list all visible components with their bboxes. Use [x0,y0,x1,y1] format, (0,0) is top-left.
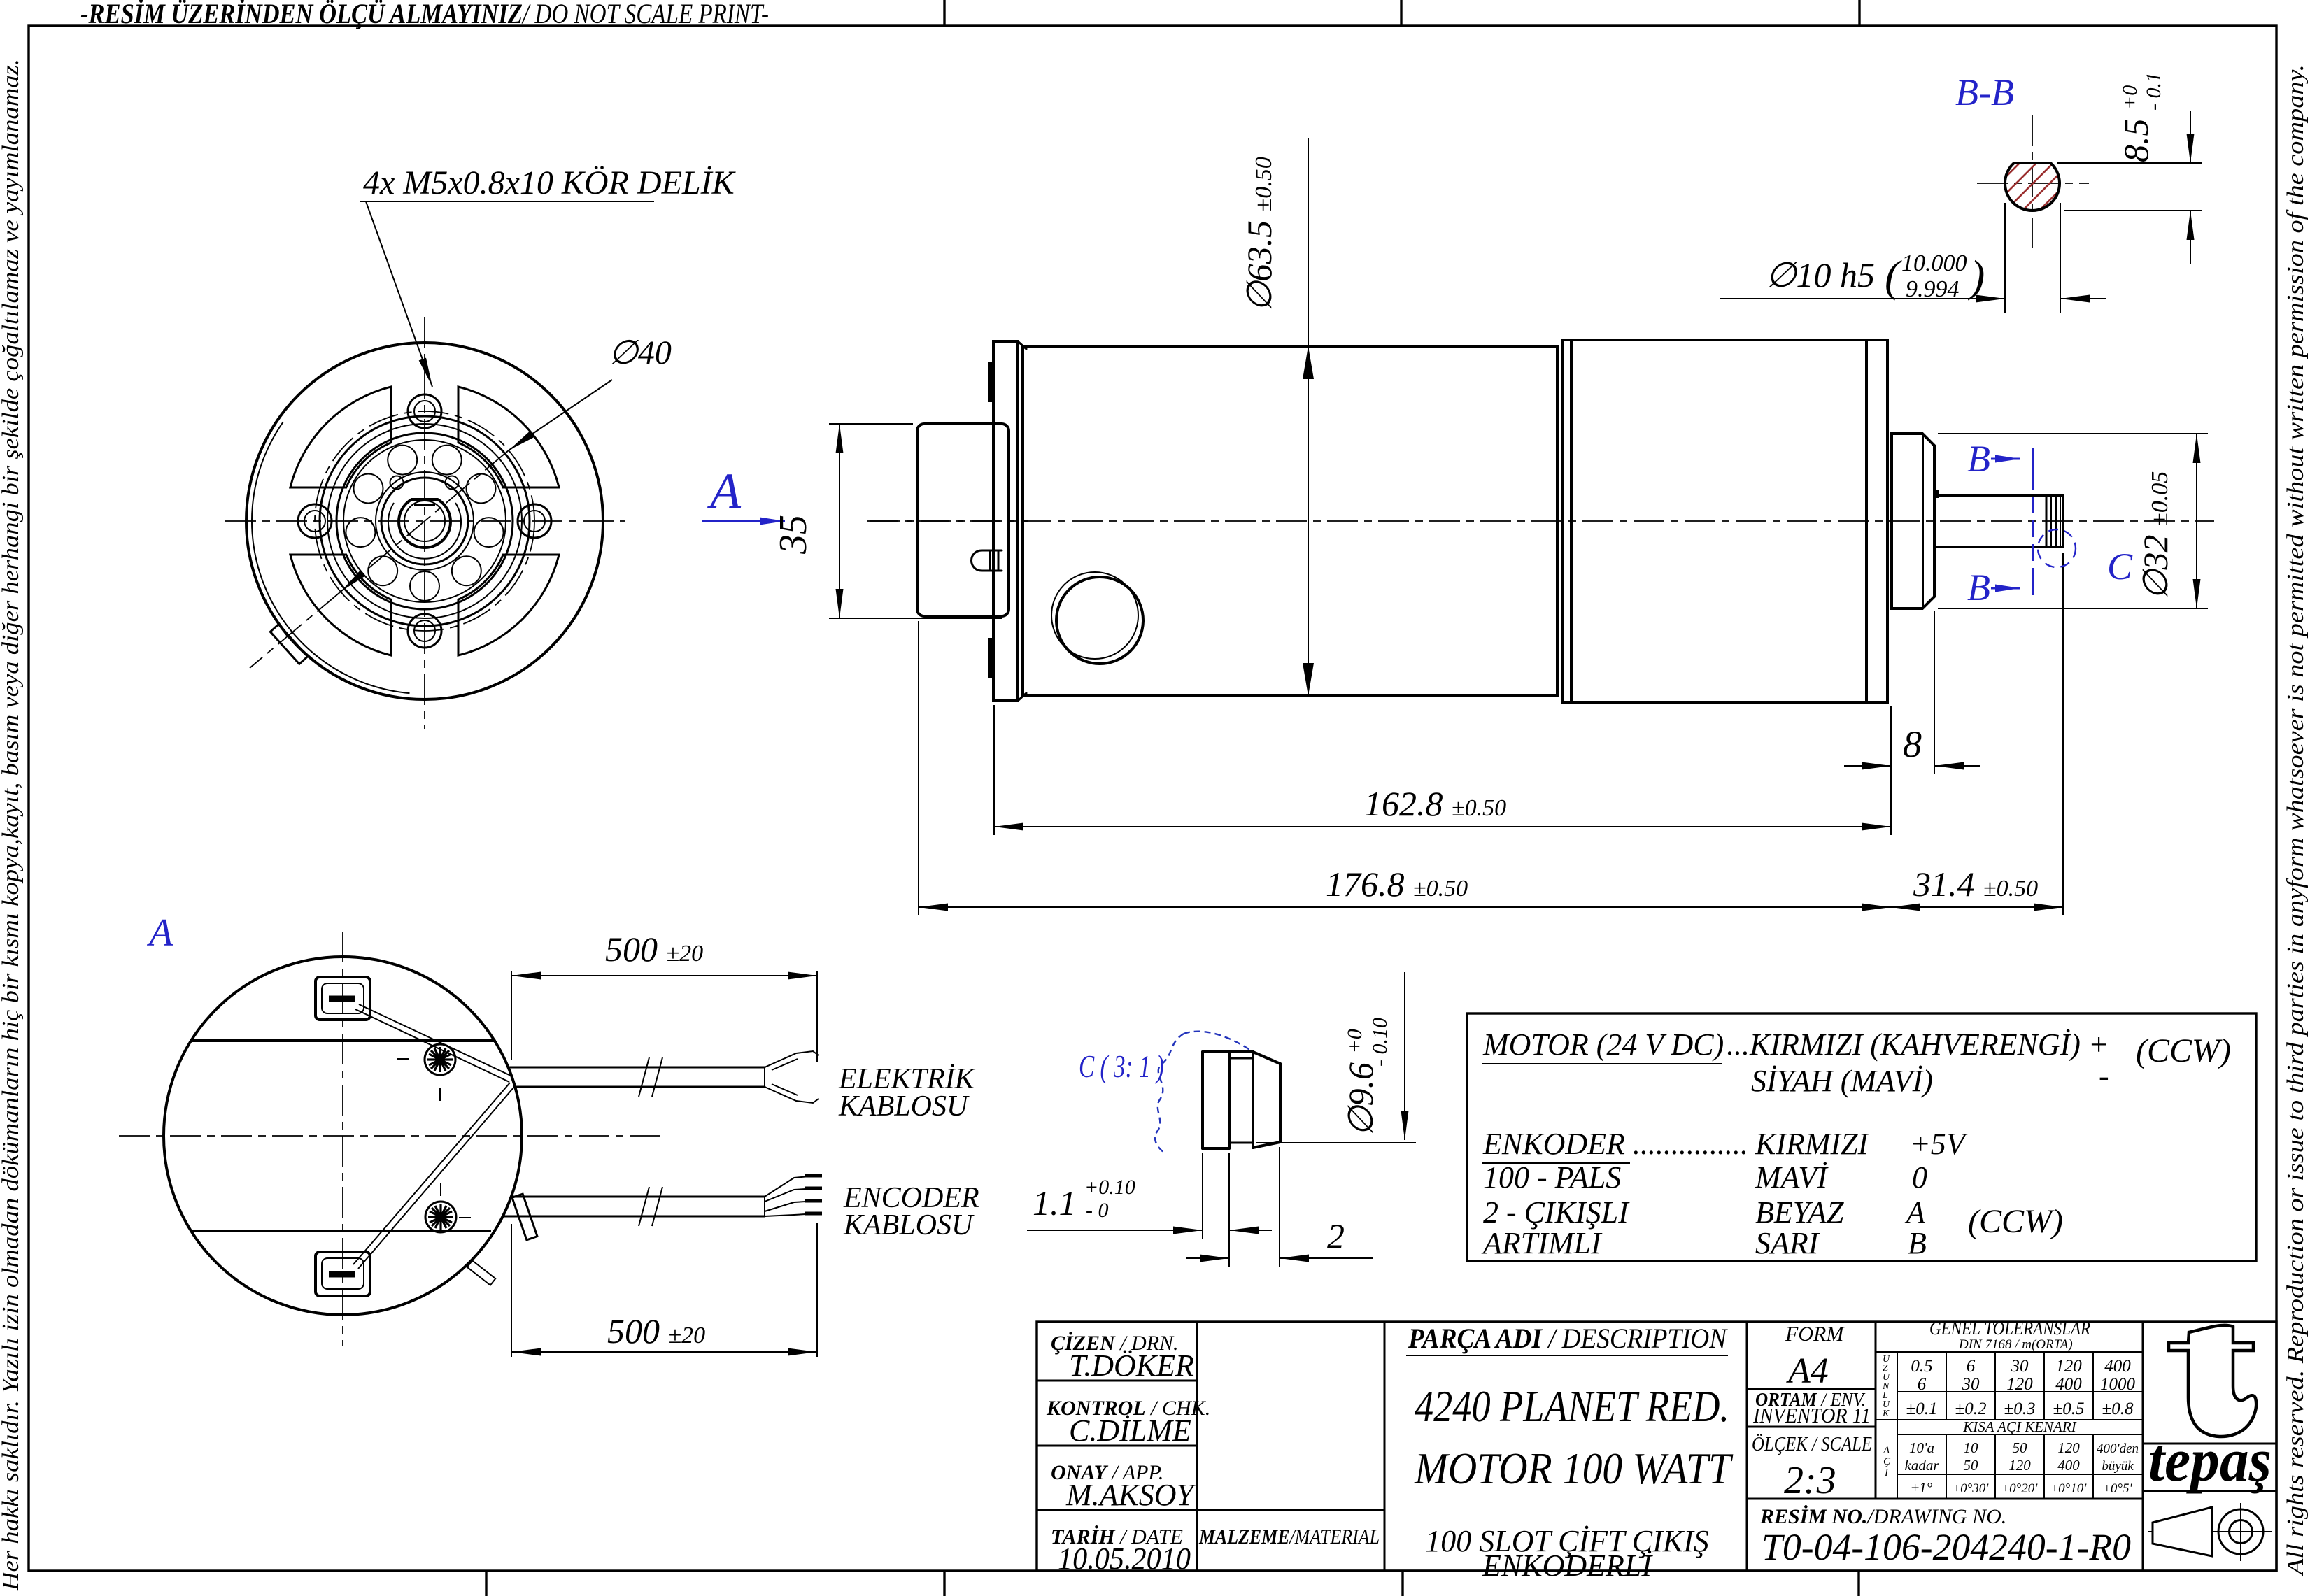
svg-text:0: 0 [1912,1160,1927,1195]
svg-text:1.1: 1.1 [1033,1183,1077,1223]
svg-text:∅10 h5: ∅10 h5 [1766,255,1875,294]
svg-text:- 0.1: - 0.1 [2142,72,2165,111]
svg-text:FORM: FORM [1785,1323,1845,1346]
svg-text:I: I [1884,1467,1889,1479]
svg-text:PARÇA ADI / DESCRIPTION: PARÇA ADI / DESCRIPTION [1408,1323,1728,1354]
svg-text:SARI: SARI [1755,1226,1820,1260]
svg-text:400: 400 [2055,1375,2082,1394]
svg-text:T0-04-106-204240-1-R0: T0-04-106-204240-1-R0 [1762,1526,2131,1568]
svg-text:MALZEME/MATERIAL: MALZEME/MATERIAL [1198,1525,1380,1548]
svg-text:+5V: +5V [1910,1127,1969,1161]
svg-text:1000: 1000 [2100,1375,2136,1394]
svg-text:INVENTOR 11: INVENTOR 11 [1752,1403,1871,1427]
svg-text:+0.10: +0.10 [1084,1176,1135,1199]
svg-text:±0°5': ±0°5' [2103,1481,2132,1496]
svg-text:kadar: kadar [1905,1457,1940,1474]
svg-text:MAVİ: MAVİ [1755,1160,1829,1195]
svg-text:(CCW): (CCW) [1968,1203,2063,1240]
svg-text:120: 120 [2006,1375,2033,1394]
svg-text:A4: A4 [1786,1351,1829,1391]
svg-text:10.05.2010: 10.05.2010 [1058,1541,1191,1576]
svg-text:M.AKSOY: M.AKSOY [1065,1478,1197,1512]
svg-text:-RESİM ÜZERİNDEN ÖLÇÜ ALMAYINI: -RESİM ÜZERİNDEN ÖLÇÜ ALMAYINIZ [80,0,523,29]
svg-text:400: 400 [2104,1357,2131,1376]
svg-text:KISA AÇI KENARI: KISA AÇI KENARI [1962,1418,2076,1435]
svg-text:0.5: 0.5 [1911,1357,1932,1376]
svg-text:6: 6 [1918,1375,1927,1394]
svg-text:B: B [1908,1226,1927,1260]
svg-text:C ( 3: 1 ): C ( 3: 1 ) [1079,1048,1164,1084]
svg-text:ENKODERLİ: ENKODERLİ [1482,1548,1653,1583]
svg-text:): ) [1967,251,1985,301]
svg-text:-: - [2099,1059,2109,1093]
svg-text:±0.2: ±0.2 [1955,1399,1987,1418]
svg-text:RESİM NO./DRAWING NO.: RESİM NO./DRAWING NO. [1759,1505,2006,1528]
svg-text:...KIRMIZI (KAHVERENGİ) +: ...KIRMIZI (KAHVERENGİ) + [1727,1027,2109,1062]
svg-text:400'den: 400'den [2097,1441,2139,1456]
svg-text:Ç: Ç [1883,1456,1891,1467]
svg-text:±0.5: ±0.5 [2053,1399,2085,1418]
svg-text:ÖLÇEK / SCALE: ÖLÇEK / SCALE [1752,1434,1872,1455]
svg-text:2 - ÇIKIŞLI: 2 - ÇIKIŞLI [1483,1195,1630,1230]
svg-text:10: 10 [1964,1439,1979,1456]
svg-text:MOTOR (24 V DC): MOTOR (24 V DC) [1482,1027,1724,1062]
svg-text:120: 120 [2057,1439,2080,1456]
svg-text:30: 30 [2011,1357,2029,1376]
svg-text:10'a: 10'a [1909,1439,1934,1456]
svg-text:±0.3: ±0.3 [2004,1399,2036,1418]
svg-text:4240 PLANET RED.: 4240 PLANET RED. [1415,1381,1729,1431]
svg-text:±0°20': ±0°20' [2002,1481,2039,1496]
svg-text:(CCW): (CCW) [2136,1032,2231,1069]
svg-text:BEYAZ: BEYAZ [1755,1195,1844,1230]
svg-text:KIRMIZI: KIRMIZI [1755,1127,1870,1161]
svg-text:C: C [2107,546,2133,587]
svg-text:- 0.10: - 0.10 [1368,1018,1391,1067]
svg-text:KABLOSU: KABLOSU [843,1209,975,1241]
svg-text:30: 30 [1962,1375,1980,1394]
svg-text:120: 120 [2008,1457,2031,1474]
svg-text:6: 6 [1967,1357,1976,1376]
svg-text:MOTOR 100 WATT: MOTOR 100 WATT [1414,1444,1734,1493]
svg-text:T.DÖKER: T.DÖKER [1069,1348,1194,1383]
svg-text:KABLOSU: KABLOSU [838,1090,970,1123]
svg-text:35: 35 [772,515,815,555]
svg-text:B: B [1967,567,1990,608]
svg-text:2: 2 [1327,1216,1345,1255]
svg-text:∅40: ∅40 [609,334,672,371]
svg-text:Her hakkı saklıdır. Yazılı izi: Her hakkı saklıdır. Yazılı izin olmadan … [0,59,24,1591]
svg-text:4x M5x0.8x10 KÖR DELİK: 4x M5x0.8x10 KÖR DELİK [363,164,737,201]
svg-text:K: K [1882,1409,1890,1419]
svg-text:A: A [1904,1195,1926,1230]
svg-text:ARTIMLI: ARTIMLI [1481,1226,1603,1260]
svg-text:GENEL TOLERANSLAR: GENEL TOLERANSLAR [1929,1318,2090,1339]
svg-text:ENKODER ...............: ENKODER ............... [1482,1127,1748,1161]
svg-text:10.000: 10.000 [1901,250,1967,276]
svg-text:/ DO NOT SCALE PRINT-: / DO NOT SCALE PRINT- [521,0,769,29]
svg-text:±0°30': ±0°30' [1953,1481,1990,1496]
svg-text:C.DİLME: C.DİLME [1069,1413,1191,1448]
svg-text:B-B: B-B [1955,71,2014,113]
svg-text:50: 50 [1964,1457,1979,1474]
svg-text:(: ( [1885,251,1902,301]
svg-text:100 - PALS: 100 - PALS [1483,1160,1621,1195]
svg-text:DIN 7168 / m(ORTA): DIN 7168 / m(ORTA) [1958,1337,2073,1352]
svg-text:tepaş: tepaş [2148,1427,2272,1495]
svg-text:All rights reserved. Reproduct: All rights reserved. Reproduction or iss… [2283,64,2309,1576]
svg-text:A: A [707,463,742,519]
svg-text:2:3: 2:3 [1784,1459,1836,1502]
svg-text:A: A [146,911,173,955]
svg-text:50: 50 [2013,1439,2028,1456]
svg-text:±1°: ±1° [1911,1479,1933,1496]
svg-text:8: 8 [1903,723,1922,765]
svg-text:- 0: - 0 [1086,1199,1109,1222]
svg-text:±0°10': ±0°10' [2051,1481,2088,1496]
svg-text:büyük: büyük [2102,1459,2134,1474]
svg-text:±0.8: ±0.8 [2102,1399,2134,1418]
svg-text:400: 400 [2057,1457,2080,1474]
svg-text:A: A [1883,1445,1890,1456]
svg-text:120: 120 [2055,1357,2082,1376]
svg-text:±0.1: ±0.1 [1906,1399,1938,1418]
svg-text:B: B [1967,438,1990,480]
svg-text:SİYAH (MAVİ): SİYAH (MAVİ) [1751,1064,1933,1098]
